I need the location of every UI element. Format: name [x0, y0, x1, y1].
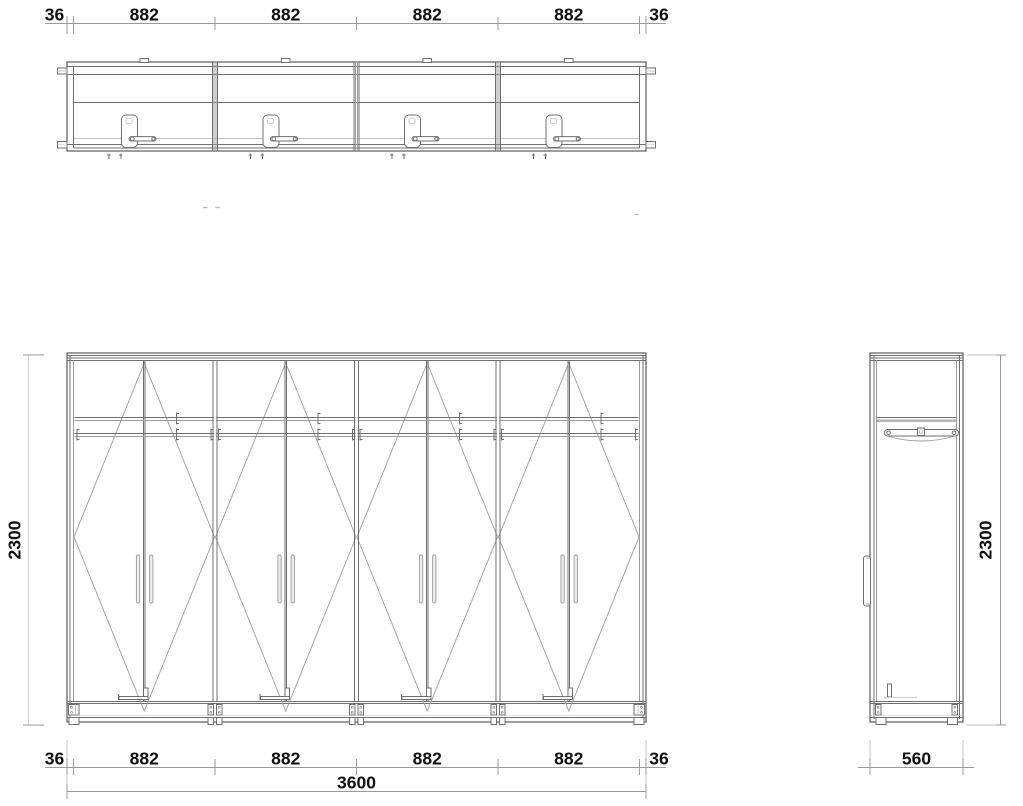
dim-label-height-right-2300: 2300: [976, 520, 996, 559]
base-bracket-right: [634, 705, 645, 716]
dim-label-top-882-3: 882: [413, 5, 442, 25]
dim-label-bottom-36-left: 36: [45, 749, 65, 769]
plinth-foot-left: [69, 718, 79, 725]
dim-label-top-36-left: 36: [45, 5, 65, 25]
stray-marks: [203, 208, 639, 215]
side-foot-back: [948, 718, 958, 725]
dim-label-top-36-right: 36: [649, 5, 669, 25]
dimension-total-width: 3600: [67, 773, 646, 800]
side-handle: [864, 556, 871, 606]
side-foot-front: [876, 718, 886, 725]
dimension-height-left: 2300: [5, 355, 45, 725]
plinth-foot-right: [634, 718, 644, 725]
dimension-height-right: 2300: [966, 355, 1006, 725]
dim-label-bottom-882-4: 882: [554, 749, 583, 769]
dim-label-bottom-882-3: 882: [413, 749, 442, 769]
dim-label-bottom-36-right: 36: [649, 749, 669, 769]
dimension-top-row: 36 882 882 882 882 36: [45, 5, 669, 35]
drawing-canvas: 36 882 882 882 882 36 36 882 882 882 882…: [0, 0, 1023, 806]
base-bracket-left: [69, 705, 80, 716]
rail-clip: [918, 428, 925, 436]
dim-label-top-882-1: 882: [130, 5, 159, 25]
front-carcass: [67, 353, 646, 722]
dim-label-height-left-2300: 2300: [5, 520, 25, 559]
side-elevation: [864, 353, 964, 725]
plan-view: [58, 59, 656, 159]
front-elevation: [67, 353, 646, 725]
dim-label-bottom-882-2: 882: [271, 749, 300, 769]
side-carcass: [870, 353, 963, 722]
dim-label-depth-560: 560: [902, 749, 931, 769]
dim-label-total-3600: 3600: [337, 773, 376, 793]
dim-label-top-882-4: 882: [554, 5, 583, 25]
dimension-depth: 560: [858, 740, 974, 775]
dim-label-top-882-2: 882: [271, 5, 300, 25]
dim-label-bottom-882-1: 882: [130, 749, 159, 769]
